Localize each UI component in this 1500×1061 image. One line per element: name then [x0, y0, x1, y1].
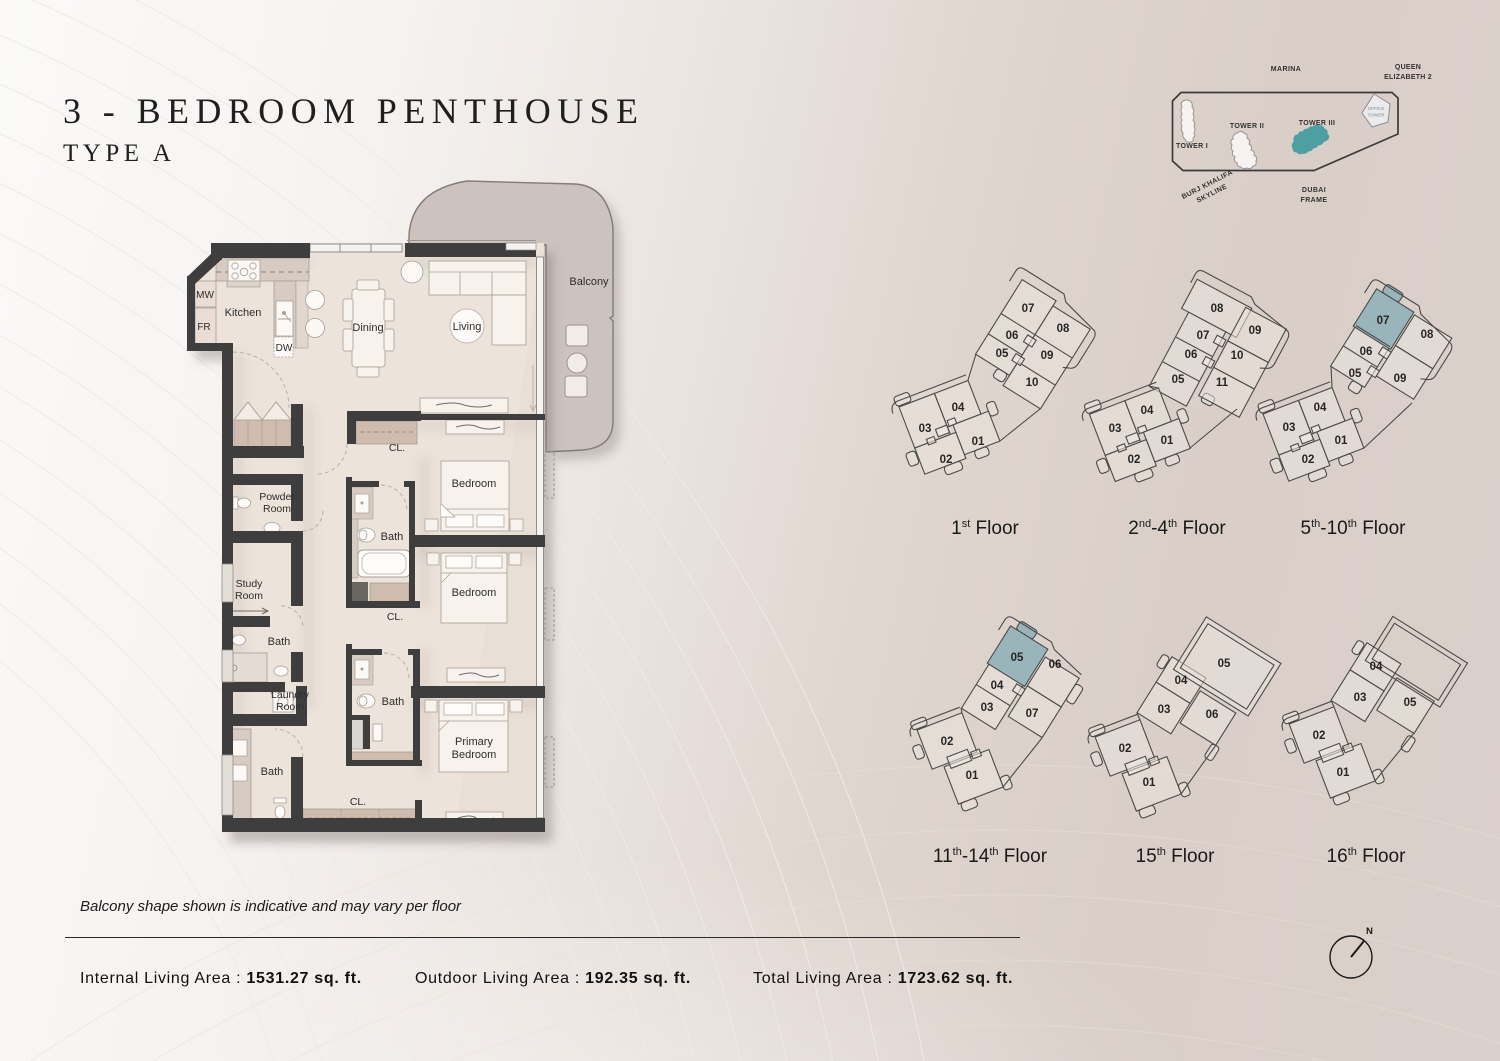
svg-text:05: 05	[1011, 652, 1024, 664]
svg-text:07: 07	[1377, 315, 1390, 327]
svg-text:10: 10	[1231, 350, 1244, 362]
svg-text:01: 01	[966, 770, 979, 782]
svg-text:06: 06	[1006, 330, 1019, 342]
svg-text:02: 02	[1302, 454, 1315, 466]
svg-text:02: 02	[940, 454, 953, 466]
svg-text:01: 01	[1143, 777, 1156, 789]
svg-text:03: 03	[919, 423, 932, 435]
svg-text:06: 06	[1206, 709, 1219, 721]
svg-text:03: 03	[1283, 422, 1296, 434]
svg-text:07: 07	[1022, 303, 1035, 315]
svg-text:03: 03	[1354, 692, 1367, 704]
svg-text:06: 06	[1049, 659, 1062, 671]
svg-text:04: 04	[991, 680, 1004, 692]
svg-text:04: 04	[1314, 402, 1327, 414]
svg-text:01: 01	[972, 436, 985, 448]
svg-text:04: 04	[952, 402, 965, 414]
svg-text:04: 04	[1141, 405, 1154, 417]
svg-text:02: 02	[941, 736, 954, 748]
svg-text:01: 01	[1337, 767, 1350, 779]
svg-text:06: 06	[1185, 349, 1198, 361]
svg-text:02: 02	[1313, 730, 1326, 742]
svg-text:04: 04	[1370, 661, 1383, 673]
svg-text:05: 05	[1172, 374, 1185, 386]
svg-text:02: 02	[1119, 743, 1132, 755]
svg-text:08: 08	[1211, 303, 1224, 315]
svg-text:07: 07	[1197, 330, 1210, 342]
svg-text:09: 09	[1394, 373, 1407, 385]
svg-text:10: 10	[1026, 377, 1039, 389]
svg-text:05: 05	[1404, 697, 1417, 709]
svg-text:09: 09	[1041, 350, 1054, 362]
svg-text:07: 07	[1026, 708, 1039, 720]
svg-text:09: 09	[1249, 325, 1262, 337]
svg-text:08: 08	[1057, 323, 1070, 335]
svg-text:06: 06	[1360, 346, 1373, 358]
svg-text:11: 11	[1216, 377, 1229, 389]
svg-text:03: 03	[1158, 704, 1171, 716]
svg-text:03: 03	[981, 702, 994, 714]
svg-text:05: 05	[996, 348, 1009, 360]
svg-text:03: 03	[1109, 423, 1122, 435]
svg-text:05: 05	[1349, 368, 1362, 380]
svg-text:08: 08	[1421, 329, 1434, 341]
svg-text:02: 02	[1128, 454, 1141, 466]
svg-text:01: 01	[1161, 435, 1174, 447]
svg-text:01: 01	[1335, 435, 1348, 447]
svg-text:04: 04	[1175, 675, 1188, 687]
svg-text:05: 05	[1218, 658, 1231, 670]
